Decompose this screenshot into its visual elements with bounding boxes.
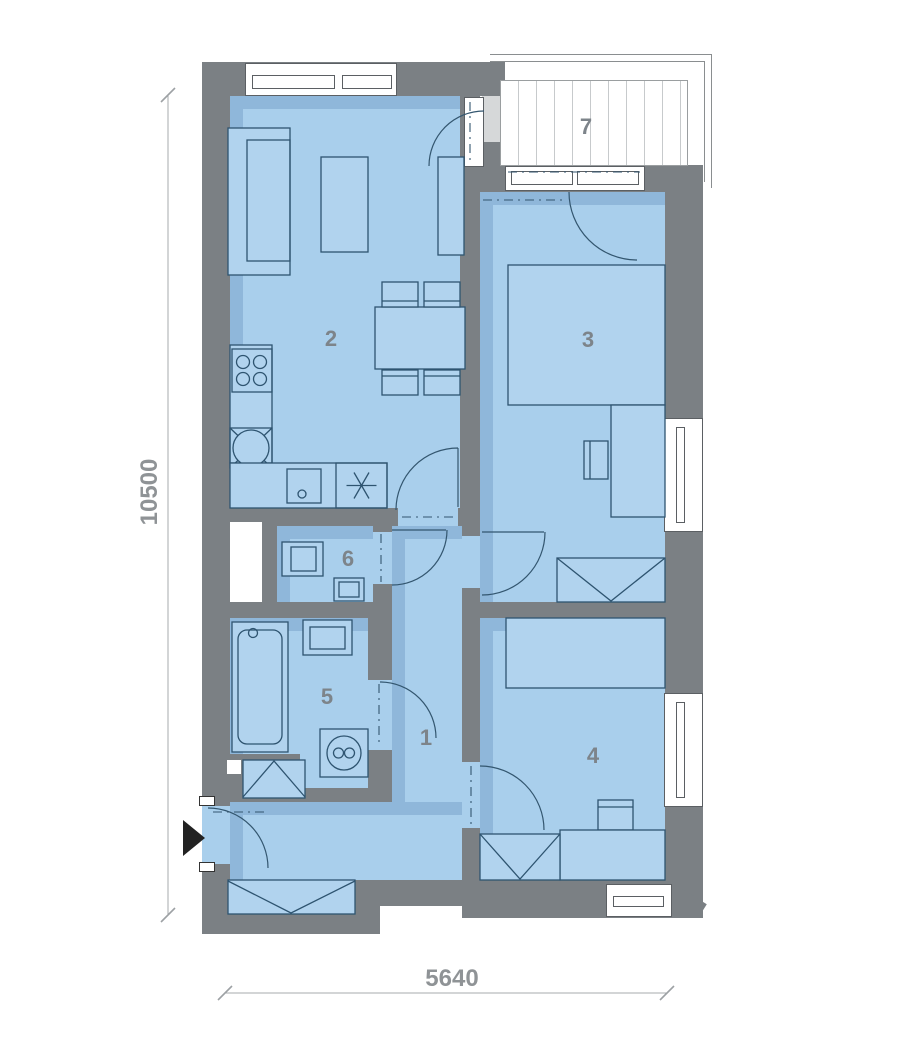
wall-segment bbox=[202, 62, 230, 806]
room-4-label: 4 bbox=[587, 743, 599, 769]
room-6-label: 6 bbox=[342, 546, 354, 572]
room-2-label: 2 bbox=[325, 326, 337, 352]
entry-wardrobe-niche bbox=[228, 880, 355, 914]
door-opening bbox=[398, 508, 458, 526]
room-1-label: 1 bbox=[420, 725, 432, 751]
room-3-label: 3 bbox=[582, 327, 594, 353]
window-frame bbox=[613, 896, 664, 907]
wall-segment bbox=[300, 788, 392, 802]
dimension-label-vertical: 10500 bbox=[136, 459, 164, 526]
window-frame bbox=[252, 75, 335, 89]
wall-segment bbox=[460, 170, 480, 536]
window-frame bbox=[342, 75, 392, 89]
room-2-floor bbox=[230, 96, 460, 508]
window-frame bbox=[511, 171, 573, 185]
floor-plan: 1 2 3 4 5 6 7 10500 5640 bbox=[0, 0, 924, 1048]
room-5-floor bbox=[230, 618, 368, 754]
balcony-door-leaf bbox=[464, 97, 484, 167]
room-4-floor bbox=[480, 618, 665, 880]
balcony-edge-shadow bbox=[482, 96, 500, 142]
dimension-label-horizontal: 5640 bbox=[425, 965, 478, 993]
room-5-label: 5 bbox=[321, 684, 333, 710]
room-7-label: 7 bbox=[580, 114, 592, 140]
window-frame bbox=[577, 171, 639, 185]
entrance-door-jamb bbox=[199, 862, 215, 872]
wall-segment bbox=[462, 618, 480, 880]
hallway-floor-entry bbox=[230, 802, 462, 880]
shaft bbox=[230, 522, 262, 602]
window-frame bbox=[676, 702, 685, 798]
wall-segment bbox=[262, 522, 277, 602]
hallway-floor-top bbox=[392, 526, 462, 618]
wall-vent bbox=[227, 760, 241, 774]
room-6-floor bbox=[277, 526, 373, 602]
door-opening bbox=[373, 532, 392, 584]
wall-segment bbox=[460, 588, 480, 602]
window-frame bbox=[676, 427, 685, 523]
bath-closet-niche bbox=[243, 760, 305, 798]
balcony-deck bbox=[500, 80, 688, 166]
entrance-arrow-icon bbox=[183, 820, 205, 856]
room-3-floor bbox=[480, 192, 665, 602]
wall-segment bbox=[228, 602, 392, 618]
room-5-floor-ext bbox=[300, 754, 368, 788]
wall-segment bbox=[462, 602, 665, 618]
wall-segment bbox=[380, 876, 462, 906]
door-opening bbox=[368, 680, 392, 750]
door-opening bbox=[462, 536, 480, 588]
door-opening bbox=[462, 762, 480, 828]
entrance-door-opening bbox=[202, 806, 230, 864]
hallway-floor-mid bbox=[392, 618, 462, 802]
entrance-door-jamb bbox=[199, 796, 215, 806]
